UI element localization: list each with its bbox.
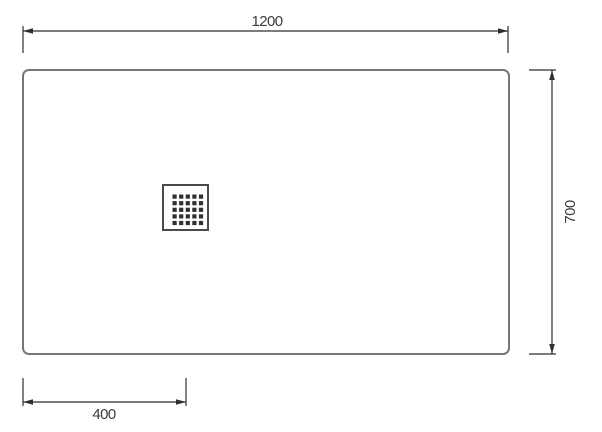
drain-hole	[179, 201, 183, 205]
drain-grate-icon	[163, 185, 208, 230]
drain-hole	[173, 221, 177, 225]
dimension-height-arrow-top	[549, 70, 554, 80]
technical-drawing-canvas: 1200 700 400	[0, 0, 602, 432]
drain-hole	[192, 201, 196, 205]
dimension-height-label: 700	[562, 200, 579, 223]
drain-hole	[199, 208, 203, 212]
drain-hole	[192, 214, 196, 218]
dimension-height-arrow-bottom	[549, 344, 554, 354]
drain-hole	[192, 221, 196, 225]
dimension-width-label: 1200	[252, 13, 283, 30]
drain-hole	[173, 214, 177, 218]
drain-hole	[186, 208, 190, 212]
drain-hole	[186, 201, 190, 205]
shower-tray-drawing: 1200 700 400	[0, 0, 602, 432]
dimension-width-arrow-right	[498, 28, 508, 33]
dimension-drain-label: 400	[92, 406, 115, 423]
dimension-width: 1200	[23, 13, 508, 53]
drain-hole	[173, 201, 177, 205]
drain-hole	[192, 195, 196, 199]
dimension-height: 700	[529, 70, 579, 354]
dimension-drain-arrow-left	[23, 399, 33, 404]
drain-hole	[186, 214, 190, 218]
drain-hole	[199, 214, 203, 218]
drain-hole	[179, 195, 183, 199]
drain-hole	[186, 195, 190, 199]
drain-hole	[199, 201, 203, 205]
drain-hole	[199, 195, 203, 199]
dimension-drain-arrow-right	[176, 399, 186, 404]
drain-hole	[173, 195, 177, 199]
drain-hole	[173, 208, 177, 212]
drain-hole	[179, 214, 183, 218]
drain-hole	[192, 208, 196, 212]
drain-hole	[179, 221, 183, 225]
drain-hole	[199, 221, 203, 225]
drain-hole	[179, 208, 183, 212]
dimension-drain-offset: 400	[23, 378, 186, 423]
dimension-width-arrow-left	[23, 28, 33, 33]
drain-hole	[186, 221, 190, 225]
tray-outline	[23, 70, 509, 354]
